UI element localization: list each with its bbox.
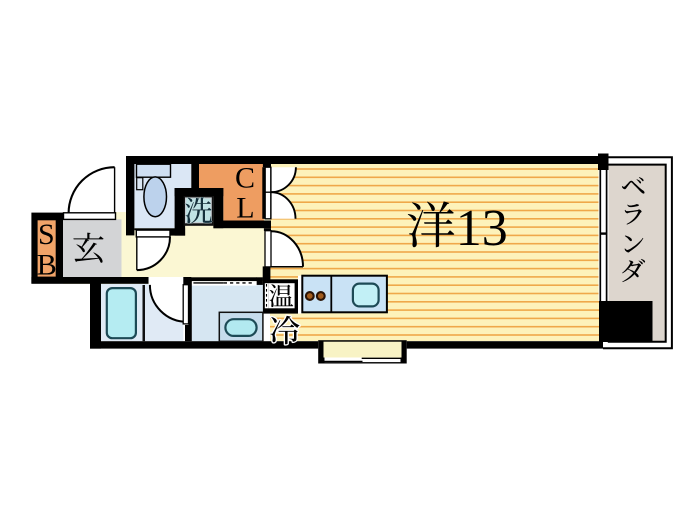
svg-text:B: B	[37, 249, 57, 282]
svg-text:13: 13	[456, 200, 508, 257]
svg-text:S: S	[38, 218, 55, 251]
svg-text:C: C	[235, 161, 255, 194]
svg-text:L: L	[236, 191, 254, 224]
